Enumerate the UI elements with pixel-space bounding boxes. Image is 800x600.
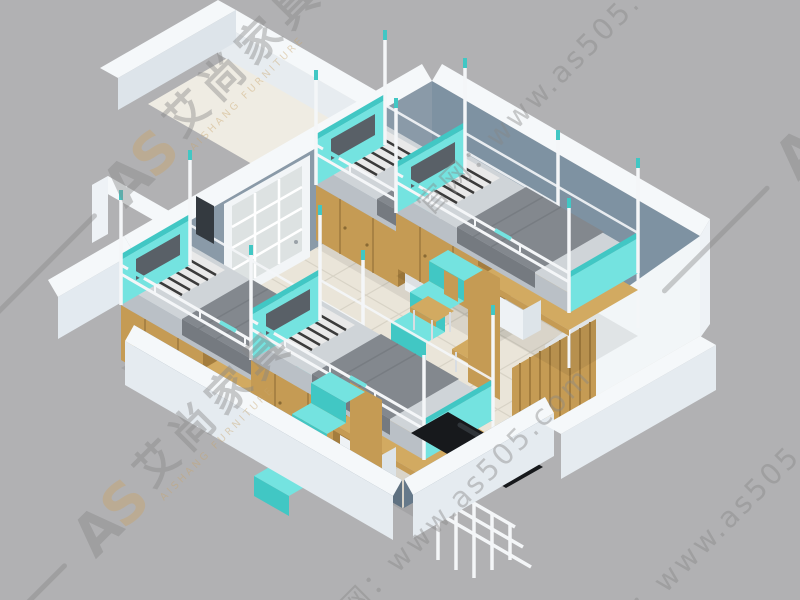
door-handle xyxy=(294,240,298,244)
dorm-room-3d-scene xyxy=(0,0,800,600)
wall-ne-outer-face xyxy=(700,219,710,338)
room-render: AS 艾尚家具AISHANG FURNITURE 官网：www.as505.co… xyxy=(0,0,800,600)
